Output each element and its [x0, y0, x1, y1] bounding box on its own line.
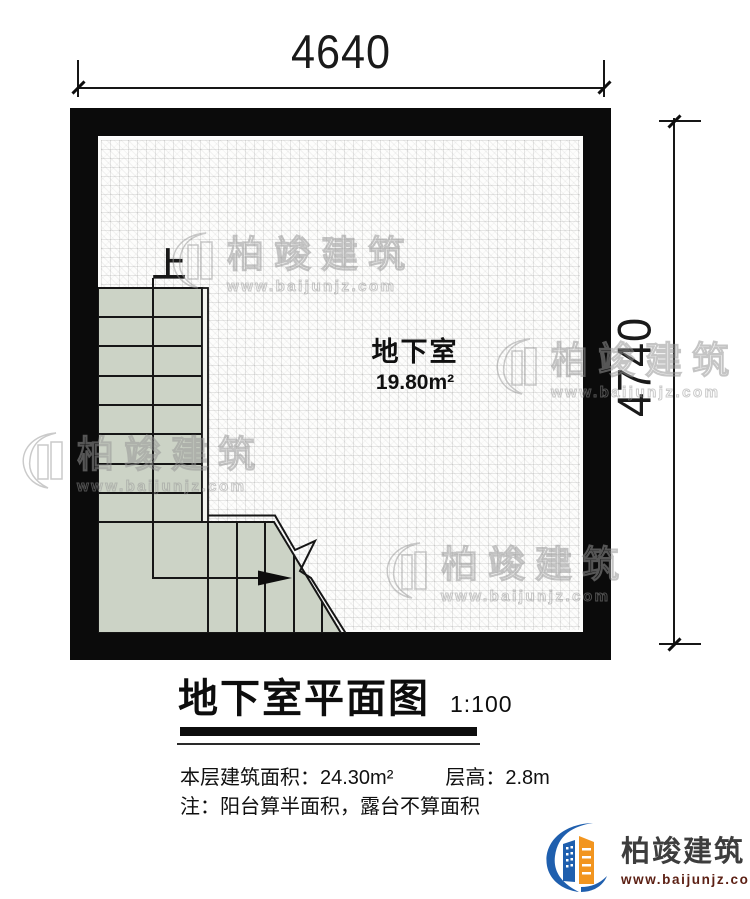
dimension-line — [673, 118, 675, 645]
company-name: 柏竣建筑 — [621, 828, 750, 870]
dimension-top-value: 4640 — [249, 24, 433, 79]
drawing-title: 地下室平面图 — [178, 666, 430, 724]
title-underline-thick — [180, 727, 477, 736]
floor-info-line: 本层建筑面积：24.30m²层高：2.8m — [180, 761, 550, 790]
floor-area-text: 本层建筑面积：24.30m² — [180, 767, 393, 789]
area-note-text: 注：阳台算半面积，露台不算面积 — [180, 790, 480, 819]
extension-line — [603, 60, 605, 97]
room-area: 19.80m² — [340, 371, 490, 395]
stair-up-label: 上 — [152, 238, 186, 287]
floorplan-page: 4640 4740 — [0, 0, 750, 899]
room-label: 地下室 19.80m² — [340, 330, 490, 395]
dimension-right-value: 4740 — [607, 317, 662, 417]
drawing-title-row: 地下室平面图 1:100 — [178, 666, 513, 724]
title-underline-thin — [177, 743, 480, 745]
watermark-logo-icon — [18, 429, 70, 491]
dimension-line — [78, 87, 605, 89]
extension-line — [659, 120, 701, 122]
company-website: www.baijunjz.com — [621, 872, 750, 887]
drawing-scale: 1:100 — [450, 691, 513, 718]
company-logo-icon — [541, 820, 613, 894]
extension-line — [659, 643, 701, 645]
stair-railing — [202, 288, 208, 522]
room-name: 地下室 — [340, 330, 490, 369]
floor-height-text: 层高：2.8m — [445, 767, 549, 789]
company-logo: 柏竣建筑 www.baijunjz.com — [541, 820, 750, 894]
extension-line — [77, 60, 79, 97]
